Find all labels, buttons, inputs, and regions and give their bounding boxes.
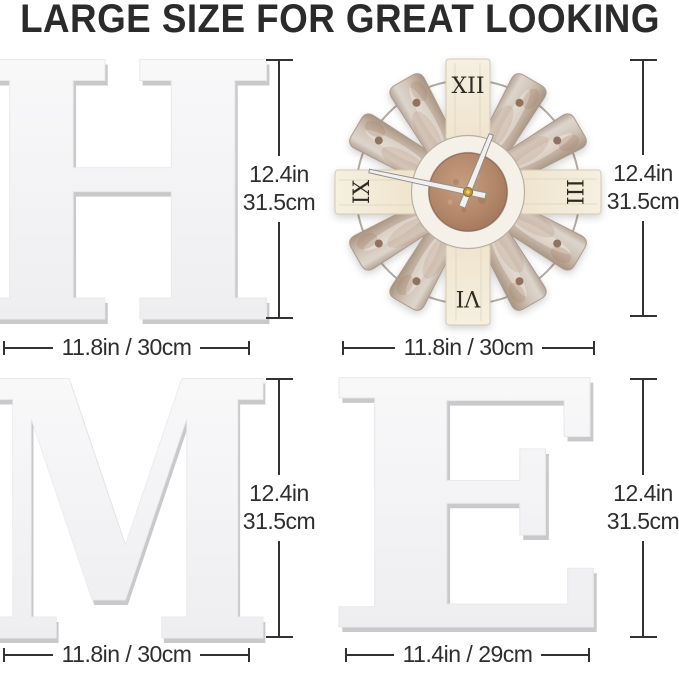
windmill-clock: XII III VI IX [335,59,601,325]
width-dimension-m: 11.8in / 30cm [3,648,250,662]
dimension-end-cap [630,636,657,638]
clock-numeral-xii: XII [451,74,484,99]
dimension-line [642,61,644,155]
clock-numeral-blade-12: XII [446,59,490,140]
dimension-line [5,347,53,349]
width-dimension-e: 11.4in / 29cm [345,648,590,662]
width-label: 11.8in / 30cm [395,334,543,362]
clock-numeral-ix: IX [350,179,375,204]
dimension-end-cap [248,341,250,355]
dimension-line [5,654,53,656]
dimension-line [278,541,280,636]
height-inches-label: 12.4in [243,480,315,508]
dimension-line [642,221,644,315]
dimension-line [278,380,280,475]
dimension-line [542,347,593,349]
dimension-line [200,654,248,656]
product-size-infographic: LARGE SIZE FOR GREAT LOOKING [0,0,679,674]
width-label: 11.8in / 30cm [53,641,201,669]
dimension-line [278,222,280,317]
width-label: 11.4in / 29cm [394,641,542,669]
height-cm-label: 31.5cm [243,189,315,217]
height-inches-label: 12.4in [607,480,679,508]
dimension-end-cap [266,317,293,319]
width-dimension-h: 11.8in / 30cm [3,341,250,355]
height-dimension-m: 12.4in 31.5cm [229,378,329,638]
clock-numeral-iii: III [561,179,586,205]
height-cm-label: 31.5cm [607,508,679,536]
dimension-end-cap [588,648,590,662]
height-dimension-e: 12.4in 31.5cm [593,378,679,638]
height-cm-label: 31.5cm [243,508,315,536]
height-dimension-h: 12.4in 31.5cm [229,59,329,319]
dimension-line [200,347,248,349]
height-cm-label: 31.5cm [607,188,679,216]
dimension-end-cap [630,315,657,317]
clock-numeral-blade-6: VI [446,244,490,325]
width-label: 11.8in / 30cm [53,334,201,362]
dimension-end-cap [266,636,293,638]
dimension-line [347,654,394,656]
dimension-line [278,61,280,156]
dimension-line [541,654,588,656]
dimension-end-cap [593,341,595,355]
dimension-line [344,347,395,349]
dimension-line [642,541,644,636]
clock-center-pin-highlight [466,190,470,194]
width-dimension-clock: 11.8in / 30cm [342,341,595,355]
dimension-line [642,380,644,475]
clock-numeral-vi: VI [456,285,482,310]
dimension-end-cap [248,648,250,662]
height-inches-label: 12.4in [607,160,679,188]
height-dimension-clock: 12.4in 31.5cm [593,59,679,317]
clock-numeral-blade-3: III [520,170,601,214]
height-inches-label: 12.4in [243,161,315,189]
